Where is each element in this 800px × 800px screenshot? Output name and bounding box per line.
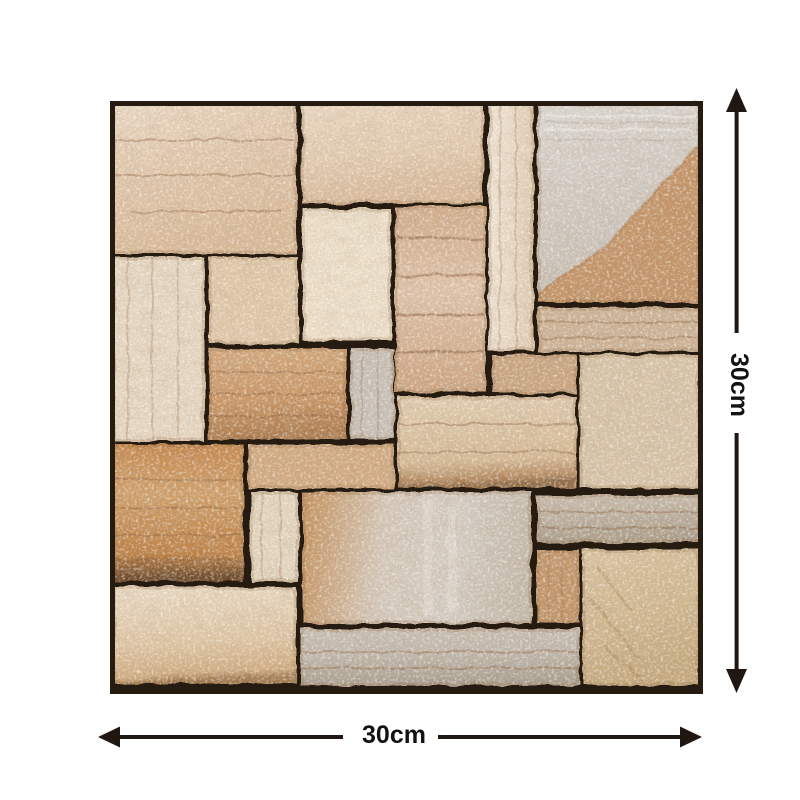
- svg-text:30cm: 30cm: [725, 353, 753, 417]
- svg-text:30cm: 30cm: [362, 721, 426, 749]
